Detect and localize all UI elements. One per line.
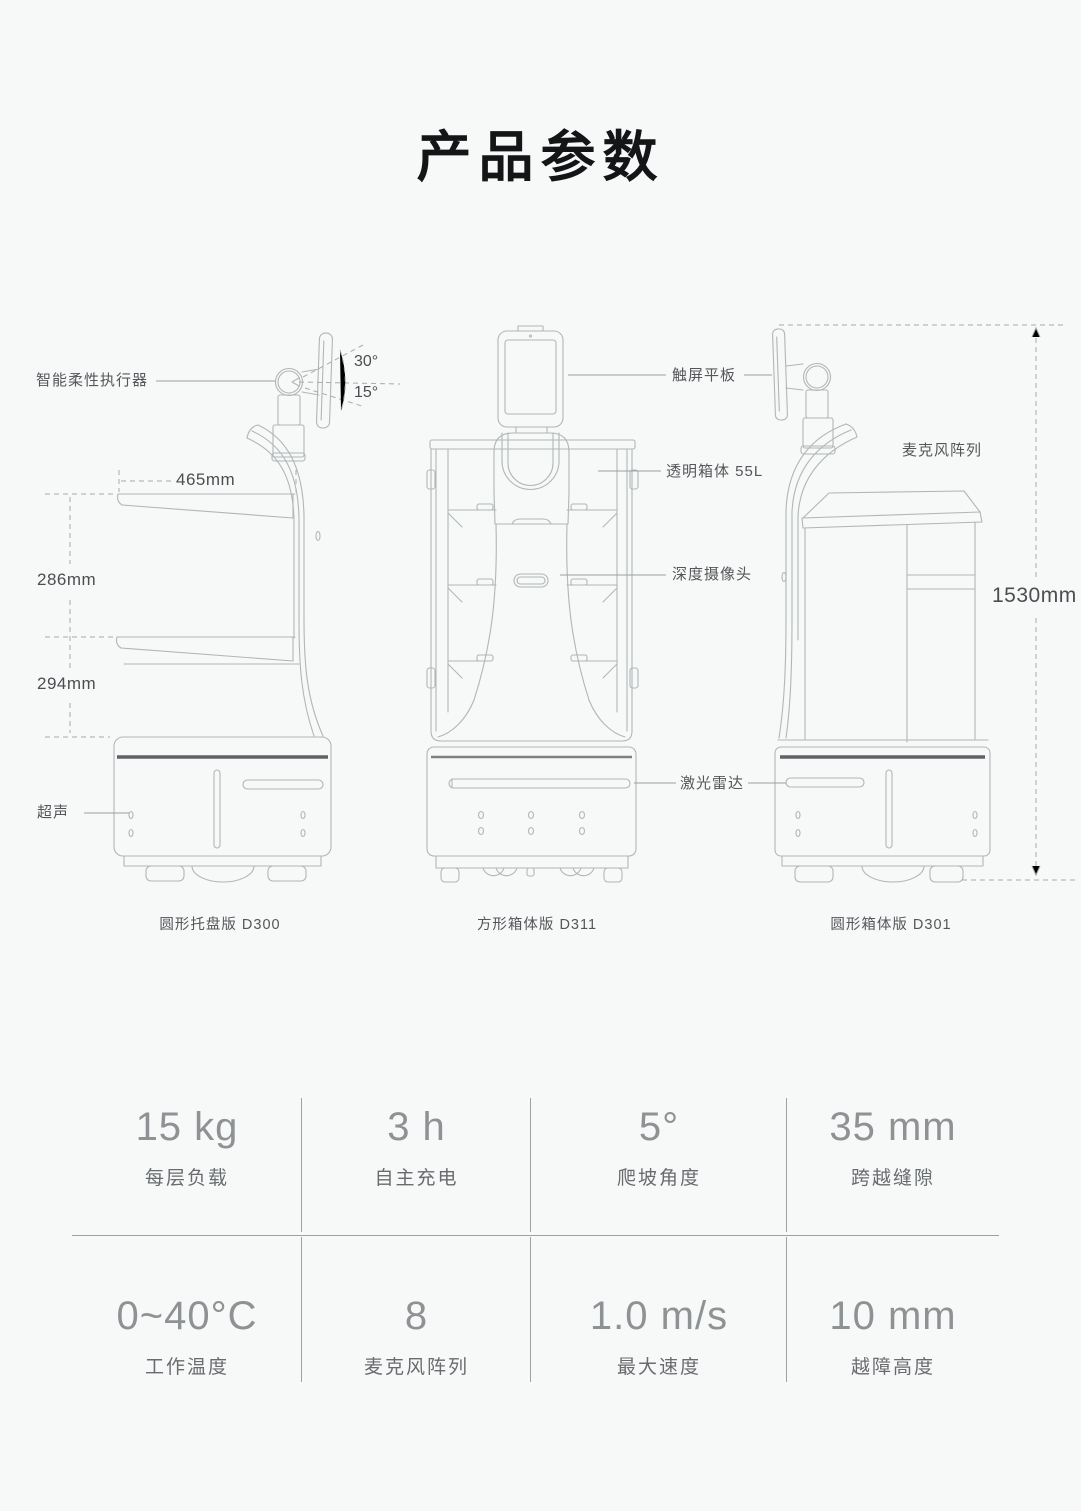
robot-d301-drawing bbox=[772, 329, 990, 882]
spec-grid: 15 kg 每层负载 3 h 自主充电 5° 爬坡角度 35 mm 跨越缝隙 bbox=[72, 1080, 999, 1400]
spec-row-1: 15 kg 每层负载 3 h 自主充电 5° 爬坡角度 35 mm 跨越缝隙 bbox=[72, 1080, 999, 1235]
spec-label: 自主充电 bbox=[302, 1168, 531, 1190]
spec-cell-gap-crossing: 35 mm 跨越缝隙 bbox=[787, 1080, 999, 1235]
spec-value: 3 h bbox=[302, 1104, 531, 1150]
callout-lidar: 激光雷达 bbox=[680, 775, 744, 793]
spec-cell-temperature: 0~40°C 工作温度 bbox=[72, 1235, 302, 1400]
callout-touch-tablet: 触屏平板 bbox=[672, 367, 736, 385]
robot-diagrams-drawing bbox=[0, 0, 1081, 1000]
robot-d311-drawing bbox=[427, 326, 638, 882]
spec-value: 0~40°C bbox=[72, 1293, 302, 1339]
spec-value: 10 mm bbox=[787, 1293, 999, 1339]
spec-value: 8 bbox=[302, 1293, 531, 1339]
spec-label: 跨越缝隙 bbox=[787, 1168, 999, 1190]
spec-value: 5° bbox=[531, 1104, 787, 1150]
spec-cell-obstacle-height: 10 mm 越障高度 bbox=[787, 1235, 999, 1400]
spec-cell-payload: 15 kg 每层负载 bbox=[72, 1080, 302, 1235]
robot-d300-drawing bbox=[114, 333, 333, 882]
callout-ultrasonic: 超声 bbox=[37, 804, 69, 822]
spec-value: 1.0 m/s bbox=[531, 1293, 787, 1339]
callout-mic-array: 麦克风阵列 bbox=[902, 442, 982, 460]
dimension-lines bbox=[45, 325, 1078, 880]
total-height-dimension: 1530mm bbox=[992, 584, 1077, 608]
screen-angle-down-label: 15° bbox=[354, 384, 378, 402]
callout-depth-camera: 深度摄像头 bbox=[672, 566, 752, 584]
spec-label: 工作温度 bbox=[72, 1357, 302, 1379]
callout-transparent-box: 透明箱体 55L bbox=[666, 463, 763, 481]
caption-model-d311: 方形箱体版 D311 bbox=[477, 916, 597, 934]
spec-cell-max-speed: 1.0 m/s 最大速度 bbox=[531, 1235, 787, 1400]
caption-model-d301: 圆形箱体版 D301 bbox=[830, 916, 951, 934]
spec-label: 越障高度 bbox=[787, 1357, 999, 1379]
caption-model-d300: 圆形托盘版 D300 bbox=[159, 916, 280, 934]
spec-label: 爬坡角度 bbox=[531, 1168, 787, 1190]
spec-row-2: 0~40°C 工作温度 8 麦克风阵列 1.0 m/s 最大速度 10 mm 越… bbox=[72, 1235, 999, 1400]
product-spec-page: 产品参数 bbox=[0, 0, 1081, 1511]
tray-width-dimension: 465mm bbox=[176, 471, 235, 489]
lower-gap-dimension: 294mm bbox=[37, 675, 96, 693]
upper-gap-dimension: 286mm bbox=[37, 571, 96, 589]
spec-value: 15 kg bbox=[72, 1104, 302, 1150]
spec-cell-mic-array: 8 麦克风阵列 bbox=[302, 1235, 531, 1400]
callout-smart-actuator: 智能柔性执行器 bbox=[36, 372, 148, 390]
spec-label: 每层负载 bbox=[72, 1168, 302, 1190]
screen-angle-up-label: 30° bbox=[354, 353, 378, 371]
spec-value: 35 mm bbox=[787, 1104, 999, 1150]
spec-label: 麦克风阵列 bbox=[302, 1357, 531, 1379]
spec-label: 最大速度 bbox=[531, 1357, 787, 1379]
spec-cell-climb-angle: 5° 爬坡角度 bbox=[531, 1080, 787, 1235]
spec-cell-charging: 3 h 自主充电 bbox=[302, 1080, 531, 1235]
